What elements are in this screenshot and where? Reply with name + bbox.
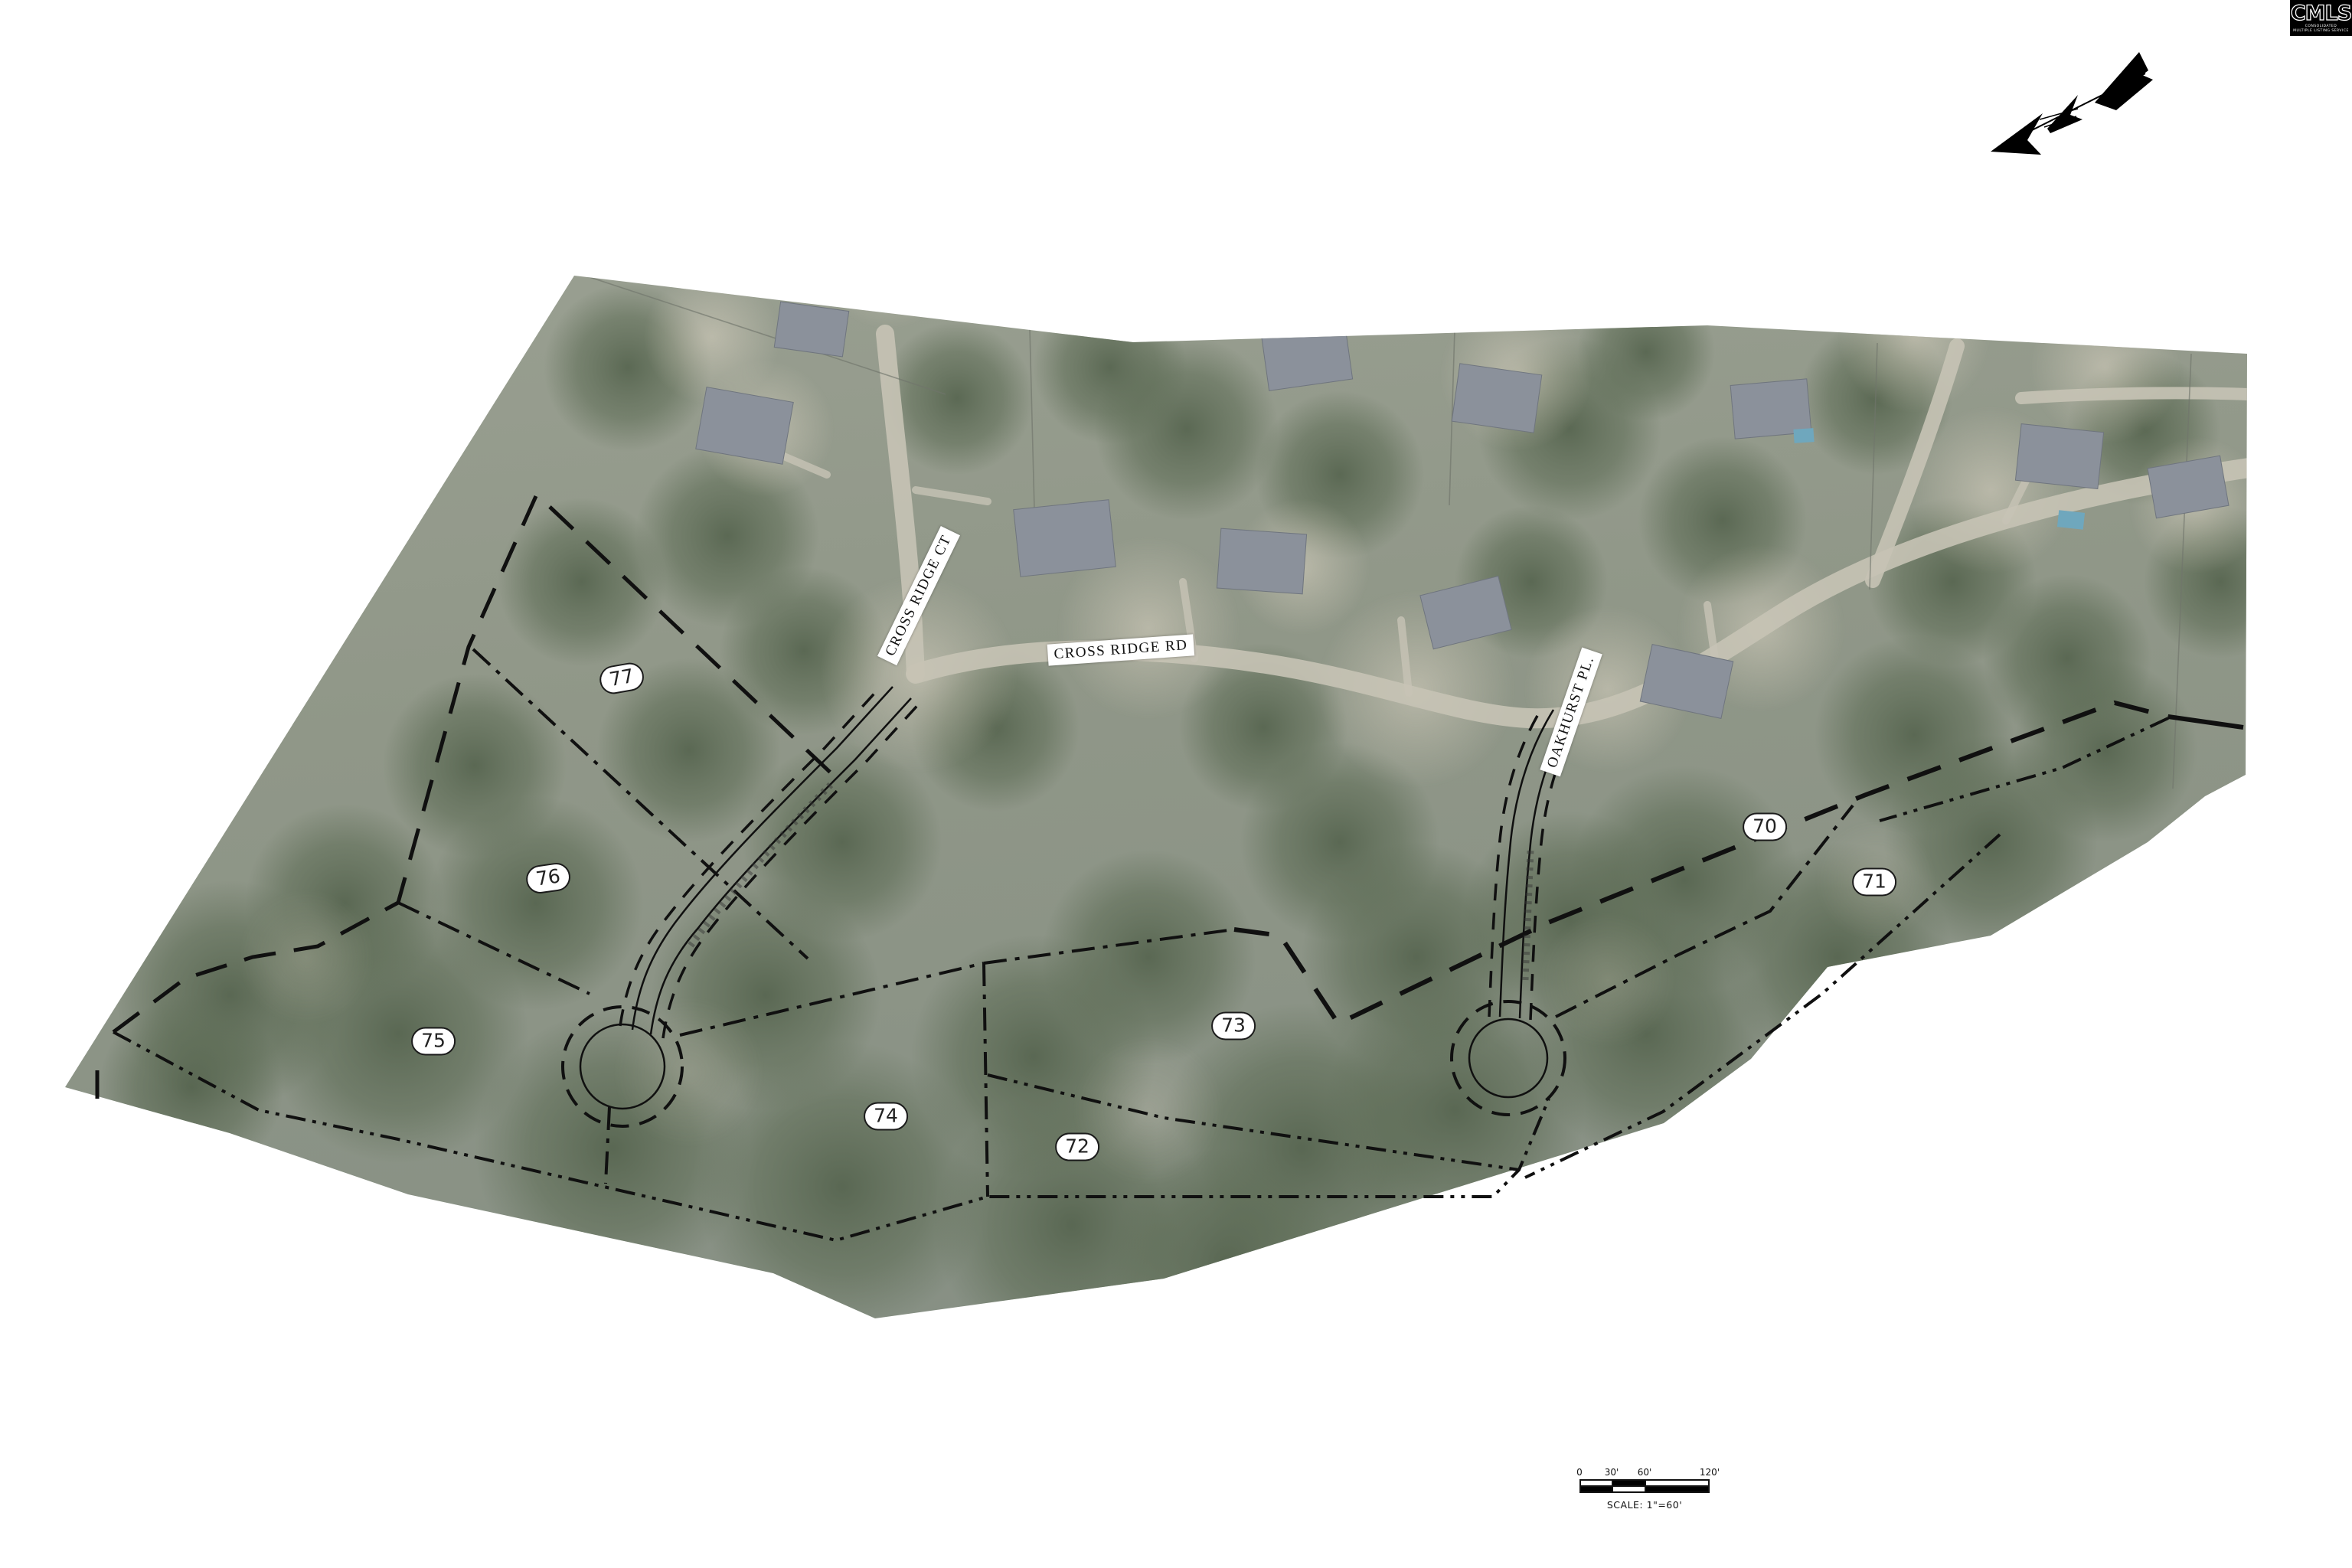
north-arrow-icon (1991, 52, 2153, 155)
lot-marker-74: 74 (864, 1102, 908, 1131)
scale-tick-0: 0 (1576, 1467, 1583, 1478)
north-arrow-fletch (2047, 95, 2082, 133)
aerial-photo-layer (0, 170, 2352, 1378)
lot-marker-75: 75 (411, 1027, 456, 1056)
lot-marker-70: 70 (1743, 813, 1787, 841)
north-arrow-head (1991, 113, 2043, 155)
road-top-right-pavement (2021, 393, 2265, 398)
cmls-logo-tagline: CONSOLIDATED MULTIPLE LISTING SERVICE (2293, 24, 2349, 33)
scale-tick-120: 120' (1700, 1467, 1720, 1478)
plat-map-screenshot: CROSS RIDGE CTCROSS RIDGE RDOAKHURST PL.… (0, 0, 2352, 1568)
lot-marker-71: 71 (1852, 868, 1896, 897)
north-arrow-tail (2095, 52, 2153, 110)
scale-tick-60: 60' (1638, 1467, 1652, 1478)
lot-marker-72: 72 (1055, 1133, 1099, 1161)
plat-map-canvas (0, 0, 2352, 1568)
lot-marker-73: 73 (1211, 1012, 1256, 1040)
cmls-logo: CMLS CONSOLIDATED MULTIPLE LISTING SERVI… (2290, 0, 2352, 36)
scale-bar-graphic (1579, 1479, 1710, 1493)
scale-bar: 0 30' 60' 120' SCALE: 1"=60' (1573, 1467, 1716, 1516)
cmls-logo-brand: CMLS (2291, 3, 2351, 24)
scale-tick-30: 30' (1605, 1467, 1619, 1478)
scale-caption: SCALE: 1"=60' (1579, 1499, 1710, 1511)
